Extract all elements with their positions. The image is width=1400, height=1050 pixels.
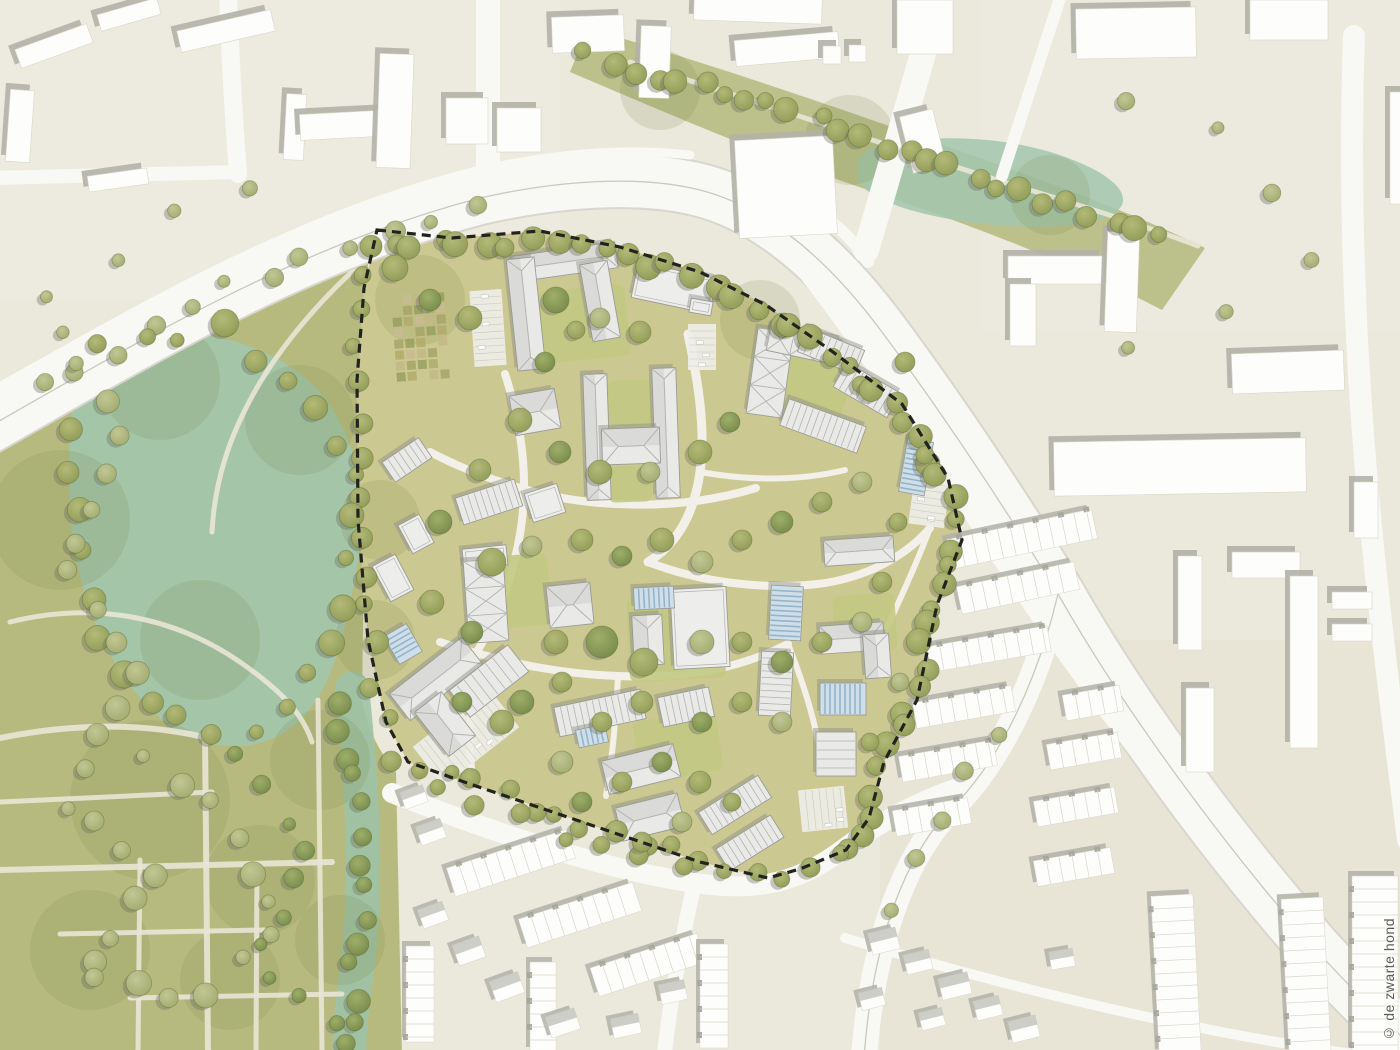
tree-canopy (672, 812, 692, 832)
building-footprint (376, 53, 414, 168)
roof-notch (1068, 851, 1075, 857)
tree-canopy (319, 630, 345, 656)
context-building (892, 0, 953, 54)
tree-canopy (201, 724, 221, 744)
tree-canopy (428, 510, 452, 534)
roof-notch (1072, 690, 1079, 696)
site-building-solar (630, 582, 674, 610)
tree-canopy (852, 612, 872, 632)
tree-canopy (112, 254, 125, 267)
tree-canopy (159, 988, 178, 1007)
tree-canopy (349, 855, 370, 876)
roof-notch (927, 801, 934, 807)
tree-canopy (586, 626, 618, 658)
site-building-gable (859, 629, 891, 679)
tree-canopy (511, 804, 530, 823)
tree-canopy (908, 849, 925, 866)
tree-canopy (652, 752, 672, 772)
tree-canopy (490, 710, 514, 734)
roof-notch (962, 637, 969, 643)
tree-canopy (86, 723, 108, 745)
tree-canopy (612, 772, 632, 792)
site-building-gable (598, 423, 660, 465)
tree-canopy (934, 151, 958, 175)
roof-notch (922, 697, 929, 703)
tree-canopy (571, 529, 593, 551)
tree-canopy (861, 733, 879, 751)
building-footprint (1390, 92, 1400, 204)
garden-plot (416, 338, 426, 348)
parked-car (482, 322, 489, 326)
tree-canopy (279, 372, 297, 390)
building-footprint (406, 946, 434, 1042)
tree-canopy (326, 719, 350, 743)
context-building (1245, 0, 1328, 40)
tree-canopy (424, 215, 437, 228)
tree-canopy (510, 690, 534, 714)
context-building (1173, 550, 1202, 650)
tree-canopy (296, 841, 315, 860)
tree-canopy (353, 793, 371, 811)
tree-canopy (328, 692, 351, 715)
context-building (1349, 476, 1378, 538)
tree-canopy (242, 181, 257, 196)
tree-canopy (992, 727, 1007, 742)
tree-canopy (356, 877, 372, 893)
building-footprint (446, 98, 488, 144)
context-building (1, 83, 35, 163)
tree-canopy (750, 301, 769, 320)
tree-canopy (640, 462, 660, 482)
tree-canopy (495, 238, 514, 257)
tree-canopy (110, 346, 128, 364)
context-building (1385, 86, 1400, 204)
tree-canopy (858, 785, 882, 809)
tree-canopy (1118, 92, 1135, 109)
building-footprint (1290, 576, 1318, 748)
tree-canopy (543, 287, 569, 313)
garden-plot (393, 328, 403, 338)
tree-canopy (559, 833, 573, 847)
tree-canopy (1263, 184, 1281, 202)
tree-canopy (452, 692, 472, 712)
garden-plot (437, 325, 447, 335)
tree-canopy (381, 751, 401, 771)
tree-canopy (83, 501, 100, 518)
roof-notch (1097, 685, 1104, 691)
site-building-solar (817, 679, 866, 715)
tree-canopy (299, 664, 316, 681)
roof-notch (987, 632, 994, 638)
site-building-gable (543, 578, 595, 629)
tree-canopy (170, 773, 195, 798)
tree-canopy (1151, 227, 1167, 243)
tree-canopy (895, 352, 915, 372)
roof-notch (1094, 846, 1101, 852)
masterplan-canvas: © de zwarte hond (0, 0, 1400, 1050)
garden-plot (393, 317, 403, 327)
tree-canopy (420, 590, 444, 614)
building-footprint (820, 683, 866, 715)
tree-canopy (347, 989, 371, 1013)
building-footprint (1076, 7, 1197, 59)
tree-canopy (140, 329, 156, 345)
tree-canopy (327, 436, 346, 455)
building-footprint (1250, 0, 1328, 40)
tree-canopy (185, 299, 200, 314)
garden-plot (426, 326, 436, 336)
site-building-carport (813, 728, 856, 776)
roof-notch (959, 742, 966, 748)
tree-canopy (279, 699, 295, 715)
tree-canopy (211, 309, 239, 337)
row-houses (696, 939, 728, 1048)
building-footprint (1054, 438, 1307, 496)
building-footprint (735, 136, 838, 239)
tree-canopy (59, 418, 82, 441)
tree-canopy (284, 868, 304, 888)
roof-notch (1013, 628, 1020, 634)
courtyard-lawn (607, 379, 653, 427)
tree-canopy (97, 464, 116, 483)
garden-plot (404, 317, 414, 327)
tree-canopy (771, 511, 793, 533)
tree-canopy (170, 333, 184, 347)
building-footprint (1010, 284, 1036, 346)
tree-canopy (916, 446, 934, 464)
tree-canopy (1219, 304, 1233, 318)
tree-canopy (812, 492, 832, 512)
tree-canopy (382, 255, 408, 281)
tree-canopy (397, 236, 420, 259)
tree-canopy (88, 335, 106, 353)
building-footprint (6, 89, 35, 162)
garden-plot (396, 372, 406, 382)
tree-canopy (1212, 122, 1224, 134)
tree-canopy (263, 972, 276, 985)
tree-canopy (567, 321, 585, 339)
tree-canopy (593, 836, 610, 853)
tree-canopy (570, 820, 588, 838)
tree-canopy (40, 291, 52, 303)
tree-canopy (478, 548, 506, 576)
tree-canopy (84, 811, 104, 831)
roof-notch (1043, 855, 1050, 861)
tree-canopy (535, 352, 555, 372)
parked-car (837, 817, 844, 821)
tree-canopy (344, 765, 360, 781)
parked-car (698, 363, 705, 367)
building-footprint (1104, 231, 1139, 332)
building-footprint (1354, 482, 1378, 538)
roof-notch (947, 693, 954, 699)
building-footprint (816, 732, 856, 776)
tree-canopy (1007, 177, 1031, 201)
tree-canopy (252, 775, 270, 793)
parked-car (481, 294, 488, 298)
tree-canopy (262, 895, 275, 908)
tree-canopy (352, 447, 374, 469)
context-building (1327, 586, 1372, 609)
tree-canopy (1076, 206, 1097, 227)
tree-canopy (330, 595, 356, 621)
tree-canopy (283, 818, 296, 831)
tree-canopy (66, 534, 85, 553)
tree-canopy (329, 1016, 345, 1032)
garden-plot (414, 316, 424, 326)
tree-canopy (1032, 194, 1053, 215)
tree-canopy (630, 648, 658, 676)
row-houses (402, 941, 434, 1042)
tree-canopy (290, 248, 308, 266)
garden-plot (406, 349, 416, 359)
tree-canopy (61, 802, 75, 816)
garden-plot (417, 349, 427, 359)
roof-notch (1068, 791, 1075, 797)
building-footprint (897, 0, 953, 54)
tree-canopy (96, 390, 119, 413)
garden-plot (415, 327, 425, 337)
context-building (1327, 618, 1372, 641)
tree-canopy (57, 326, 70, 339)
tree-canopy (771, 651, 793, 673)
tree-canopy (717, 87, 733, 103)
tree-canopy (592, 712, 612, 732)
tree-canopy (612, 546, 632, 566)
building-footprint (849, 45, 866, 62)
parked-car (696, 341, 703, 345)
tree-canopy (230, 829, 249, 848)
tree-canopy (772, 712, 792, 732)
roof-notch (1094, 787, 1101, 793)
tree-canopy (650, 528, 674, 552)
tree-canopy (430, 779, 446, 795)
tree-canopy (878, 140, 898, 160)
tree-canopy (464, 795, 484, 815)
row-houses (1277, 892, 1331, 1050)
park-path (256, 864, 257, 1050)
tree-canopy (142, 692, 164, 714)
tree-canopy (338, 550, 353, 565)
building-footprint (823, 46, 841, 64)
roof-notch (1043, 796, 1050, 802)
site-building-gable (820, 532, 895, 567)
tree-canopy (356, 567, 377, 588)
tree-canopy (629, 321, 651, 343)
tree-canopy (137, 750, 150, 763)
parked-car (917, 497, 924, 502)
tree-canopy (774, 97, 799, 122)
tree-canopy (508, 408, 532, 432)
tree-canopy (58, 560, 77, 579)
tree-canopy (37, 374, 54, 391)
tree-canopy (442, 232, 467, 257)
garden-plot (438, 336, 448, 346)
tree-canopy (346, 1014, 363, 1031)
site-building-solar (766, 581, 804, 641)
tree-canopy (85, 968, 104, 987)
tree-canopy (69, 356, 84, 371)
building-footprint (497, 108, 541, 152)
roof-notch (999, 684, 1006, 690)
tree-canopy (193, 983, 218, 1008)
garden-plot (418, 360, 428, 370)
tree-canopy (458, 306, 482, 330)
garden-plot (428, 348, 438, 358)
tree-canopy (340, 954, 357, 971)
tree-canopy (110, 426, 129, 445)
tree-canopy (360, 235, 382, 257)
tree-canopy (588, 460, 612, 484)
tree-canopy (469, 459, 491, 481)
tree-canopy (723, 793, 741, 811)
tree-canopy (892, 412, 912, 432)
tree-canopy (944, 484, 968, 508)
tree-canopy (732, 692, 752, 712)
tree-canopy (227, 746, 242, 761)
context-building (441, 92, 488, 144)
tree-canopy (254, 938, 267, 951)
tree-canopy (552, 672, 572, 692)
tree-canopy (76, 760, 94, 778)
tree-canopy (354, 828, 372, 846)
tree-canopy (934, 812, 951, 829)
tree-canopy (663, 70, 687, 94)
tree-canopy (1122, 215, 1147, 240)
tree-canopy (572, 792, 592, 812)
tree-canopy (168, 204, 181, 217)
tree-canopy (732, 632, 752, 652)
roof-notch (953, 796, 960, 802)
tree-canopy (240, 862, 265, 887)
context-building (1181, 682, 1214, 772)
tree-canopy (218, 275, 230, 287)
copyright-label: © de zwarte hond (1381, 918, 1397, 1042)
tree-canopy (757, 92, 773, 108)
tree-canopy (631, 691, 653, 713)
vegetation-shade (295, 895, 385, 985)
tree-canopy (126, 970, 152, 996)
garden-plot (402, 295, 412, 305)
context-building (1285, 570, 1318, 748)
tree-canopy (852, 472, 872, 492)
row-houses (1147, 889, 1201, 1050)
tree-canopy (292, 988, 306, 1002)
site-building-flat (667, 583, 730, 670)
tree-canopy (57, 461, 79, 483)
tree-canopy (126, 661, 149, 684)
tree-canopy (245, 350, 268, 373)
tree-canopy (265, 268, 283, 286)
tree-canopy (469, 196, 487, 214)
tree-canopy (720, 412, 740, 432)
roof-notch (973, 688, 980, 694)
tree-canopy (848, 124, 871, 147)
tree-canopy (347, 933, 369, 955)
parking-lot (798, 786, 848, 833)
building-footprint (1186, 688, 1214, 772)
tree-canopy (692, 712, 712, 732)
tree-canopy (461, 621, 483, 643)
tree-canopy (690, 630, 714, 654)
tree-canopy (590, 308, 610, 328)
tree-canopy (113, 842, 131, 860)
tree-canopy (955, 762, 973, 780)
garden-plot (394, 339, 404, 349)
tree-canopy (688, 440, 712, 464)
parked-car (702, 353, 709, 357)
garden-plot (395, 350, 405, 360)
tree-canopy (90, 601, 107, 618)
context-building (371, 47, 414, 168)
tree-canopy (337, 1034, 356, 1050)
tree-canopy (891, 673, 909, 691)
tree-canopy (419, 289, 441, 311)
tree-canopy (574, 42, 591, 59)
context-building (1070, 1, 1196, 59)
building-footprint (1332, 624, 1372, 641)
tree-canopy (339, 503, 364, 528)
roof-notch (1056, 739, 1063, 745)
parking-lot (688, 324, 716, 370)
tree-canopy (236, 950, 251, 965)
context-building (1048, 432, 1306, 496)
roof-notch (1038, 623, 1045, 629)
tree-canopy (276, 910, 291, 925)
garden-plot (407, 371, 417, 381)
roof-notch (908, 751, 915, 757)
garden-plot (436, 314, 446, 324)
tree-canopy (544, 630, 568, 654)
tree-canopy (698, 72, 719, 93)
tree-canopy (679, 263, 704, 288)
tree-canopy (689, 771, 711, 793)
tree-canopy (1122, 341, 1135, 354)
garden-plot (440, 369, 450, 379)
tree-canopy (202, 792, 219, 809)
tree-canopy (144, 864, 168, 888)
garden-plot (403, 306, 413, 316)
roof-notch (936, 641, 943, 647)
tree-canopy (1304, 252, 1319, 267)
garden-plot (429, 370, 439, 380)
tree-canopy (889, 513, 907, 531)
tree-canopy (884, 903, 898, 917)
parked-car (478, 345, 485, 349)
building-footprint (670, 587, 730, 670)
tree-canopy (732, 530, 752, 550)
garden-plot (396, 361, 406, 371)
roof-notch (902, 805, 909, 811)
masterplan-svg (0, 0, 1400, 1050)
parked-car (825, 823, 832, 827)
tree-canopy (626, 63, 647, 84)
context-building (729, 130, 837, 239)
tree-canopy (632, 832, 652, 852)
tree-canopy (359, 912, 377, 930)
context-building (1226, 344, 1345, 394)
parked-car (928, 516, 935, 521)
tree-canopy (1055, 191, 1075, 211)
roof-notch (1081, 734, 1088, 740)
tree-canopy (522, 536, 542, 556)
context-building (492, 102, 541, 152)
parked-car (836, 808, 843, 812)
tree-canopy (351, 527, 372, 548)
garden-plot (429, 359, 439, 369)
garden-plot (405, 338, 415, 348)
tree-canopy (123, 886, 147, 910)
